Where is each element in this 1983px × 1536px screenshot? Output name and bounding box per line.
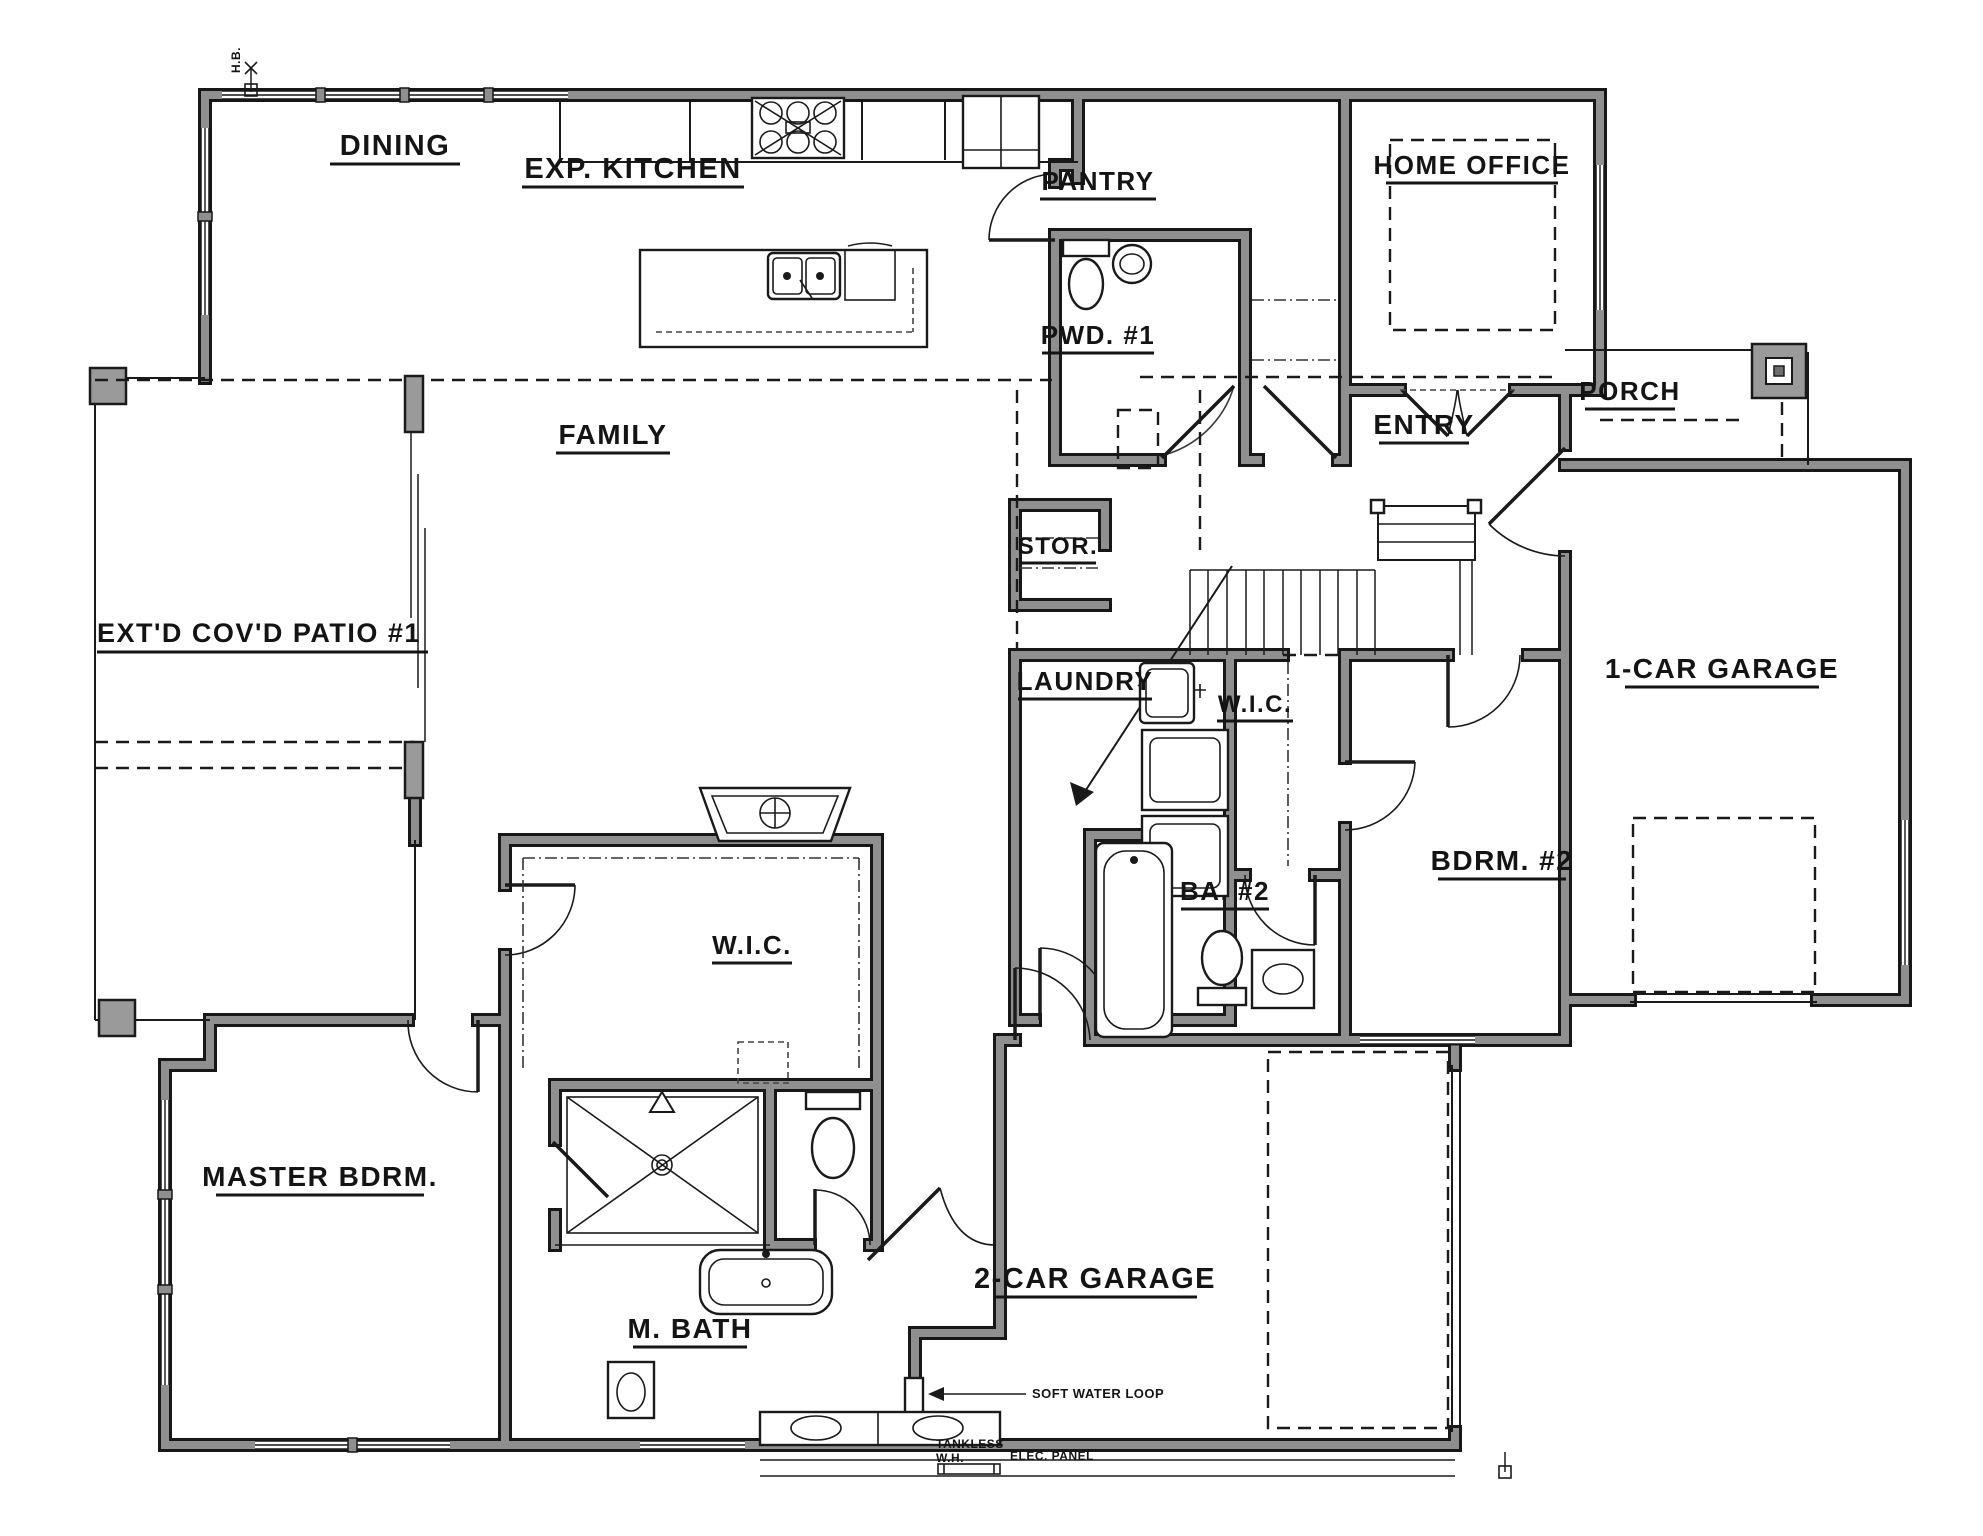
room-label-entry: ENTRY xyxy=(1373,409,1474,440)
garage-door-dashed xyxy=(1633,818,1815,992)
family-sliding-door xyxy=(405,376,425,798)
room-label-2car-garage: 2-CAR GARAGE xyxy=(974,1263,1216,1295)
front-door xyxy=(1489,448,1565,556)
cooktop-icon xyxy=(752,98,844,158)
room-label-bdrm2: BDRM. #2 xyxy=(1431,845,1574,876)
refrigerator-icon xyxy=(963,96,1039,168)
patio-boundary xyxy=(90,368,415,1036)
mbath-corner-fixture xyxy=(608,1362,654,1418)
garage-door-dashed xyxy=(1268,1052,1448,1428)
room-label-home-office: HOME OFFICE xyxy=(1373,150,1570,180)
utility-basin-icon xyxy=(700,788,850,841)
room-label-wic-master: W.I.C. xyxy=(712,930,792,960)
floor-plan-svg: DINING EXP. KITCHEN PANTRY PWD. #1 HOME … xyxy=(0,0,1983,1536)
toilet-icon xyxy=(1198,931,1246,1005)
room-label-pantry: PANTRY xyxy=(1042,166,1155,196)
shower-door-leaf xyxy=(553,1142,608,1197)
kitchen-fixtures xyxy=(560,96,1078,347)
room-label-laundry: LAUNDRY xyxy=(1017,666,1154,696)
wic-hall-door xyxy=(1345,762,1415,830)
patio-column xyxy=(99,1000,135,1036)
round-sink-icon xyxy=(1113,245,1151,283)
washer-icon xyxy=(1142,730,1228,810)
room-labels: DINING EXP. KITCHEN PANTRY PWD. #1 HOME … xyxy=(97,130,1839,1347)
patio-column xyxy=(90,368,126,404)
room-label-kitchen: EXP. KITCHEN xyxy=(524,153,741,185)
walls xyxy=(165,95,1905,1445)
room-label-mbath: M. BATH xyxy=(627,1313,752,1344)
room-label-patio: EXT'D COV'D PATIO #1 xyxy=(97,618,421,648)
room-label-pwd1: PWD. #1 xyxy=(1041,320,1156,350)
one-car-garage xyxy=(1630,818,1817,1002)
annotation-soft-water-loop: SOFT WATER LOOP xyxy=(1032,1386,1164,1401)
closet-rods xyxy=(523,858,859,1070)
annotation-elec-panel: ELEC. PANEL xyxy=(1010,1449,1094,1463)
bathtub-icon xyxy=(1096,843,1172,1037)
wic-door xyxy=(505,885,575,955)
room-label-stor: STOR. xyxy=(1018,533,1098,560)
room-label-master: MASTER BDRM. xyxy=(202,1161,438,1192)
annotation-hose-bib: H.B. xyxy=(229,47,243,73)
driveway-apron xyxy=(760,1460,1455,1476)
shower-icon xyxy=(553,1092,758,1233)
freestanding-tub-icon xyxy=(700,1250,832,1314)
tankless-wh-icon xyxy=(938,1464,1000,1474)
shower-head-icon xyxy=(650,1092,674,1112)
annotation-tankless-2: W.H. xyxy=(936,1451,964,1465)
room-label-porch: PORCH xyxy=(1579,376,1680,406)
stair-railing xyxy=(1371,500,1481,655)
toilet-icon xyxy=(1063,240,1109,309)
master-door xyxy=(408,1020,478,1092)
double-sink-icon xyxy=(768,253,840,299)
bdrm2-door xyxy=(1448,655,1520,727)
annotation-tankless-1: TANKLESS xyxy=(936,1437,1004,1451)
room-label-dining: DINING xyxy=(340,130,451,162)
kitchen-island xyxy=(640,243,927,347)
room-label-1car-garage: 1-CAR GARAGE xyxy=(1605,653,1839,684)
room-label-ba2: BA. #2 xyxy=(1180,876,1270,906)
mbath-door xyxy=(868,1188,995,1260)
hose-bib-icon xyxy=(1499,1452,1511,1478)
room-label-wic-hall: W.I.C. xyxy=(1218,691,1292,718)
master-toilet-icon xyxy=(806,1092,870,1245)
floor-plan-page: DINING EXP. KITCHEN PANTRY PWD. #1 HOME … xyxy=(0,0,1983,1536)
sink-icon xyxy=(1252,950,1314,1008)
room-label-family: FAMILY xyxy=(558,419,667,450)
doors-pantry-pwd xyxy=(989,174,1336,458)
garage-entry-door xyxy=(1015,968,1090,1040)
arrow-icon xyxy=(928,1387,944,1401)
